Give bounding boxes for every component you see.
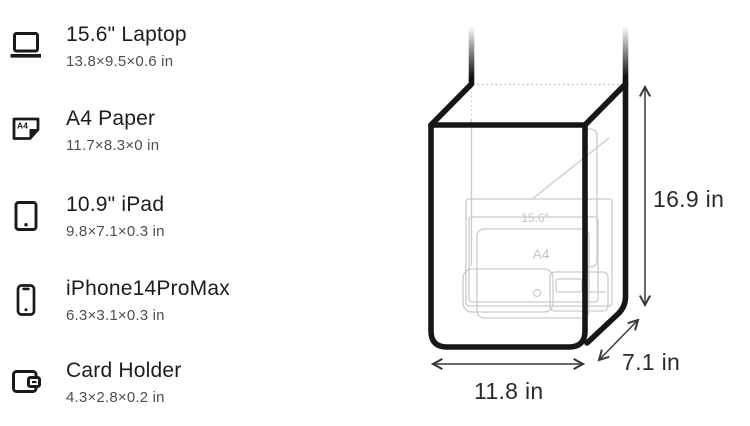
ipad-outline — [477, 229, 589, 318]
item-name: Card Holder — [66, 358, 181, 383]
dimension-arrows — [433, 87, 645, 364]
iphone-camera-dot — [534, 290, 541, 297]
bag-contents-labels: 15.6" A4 — [521, 211, 550, 262]
list-item-card-holder: Card Holder 4.3×2.8×0.2 in — [8, 356, 181, 408]
card-holder-icon — [8, 364, 44, 400]
width-dimension-label: 11.8 in — [474, 378, 543, 405]
item-dimensions: 4.3×2.8×0.2 in — [66, 388, 181, 407]
bag-wireframe-diagram: 15.6" A4 — [400, 0, 750, 426]
list-item-laptop: 15.6" Laptop 13.8×9.5×0.6 in — [8, 20, 187, 72]
iphone-icon — [8, 282, 44, 318]
inner-a4-label: A4 — [532, 246, 549, 262]
item-dimensions: 13.8×9.5×0.6 in — [66, 52, 187, 71]
item-name: iPhone14ProMax — [66, 276, 230, 301]
a4-paper-icon: A4 — [8, 112, 44, 148]
height-dimension-label: 16.9 in — [653, 186, 724, 213]
svg-text:A4: A4 — [17, 121, 28, 131]
laptop-icon — [8, 28, 44, 64]
item-dimensions: 6.3×3.1×0.3 in — [66, 306, 230, 325]
item-name: 15.6" Laptop — [66, 22, 187, 47]
bag-front-face — [431, 125, 585, 347]
item-name: 10.9" iPad — [66, 192, 165, 217]
list-item-ipad: 10.9" iPad 9.8×7.1×0.3 in — [8, 190, 165, 242]
item-dimensions: 11.7×8.3×0 in — [66, 136, 159, 155]
bag-top-left-edge — [431, 84, 472, 125]
inner-laptop-label: 15.6" — [521, 211, 549, 225]
ipad-icon — [8, 198, 44, 234]
list-item-iphone: iPhone14ProMax 6.3×3.1×0.3 in — [8, 274, 230, 326]
item-name: A4 Paper — [66, 106, 159, 131]
bag-right-face-edge — [587, 84, 626, 343]
bag-top-right-edge — [585, 84, 626, 125]
depth-dimension-label: 7.1 in — [622, 349, 680, 376]
size-comparison-infographic: 15.6" Laptop 13.8×9.5×0.6 in A4 A4 Paper… — [0, 0, 750, 426]
item-dimensions: 9.8×7.1×0.3 in — [66, 222, 165, 241]
card-holder-detail — [556, 279, 582, 292]
list-item-a4-paper: A4 A4 Paper 11.7×8.3×0 in — [8, 104, 159, 156]
